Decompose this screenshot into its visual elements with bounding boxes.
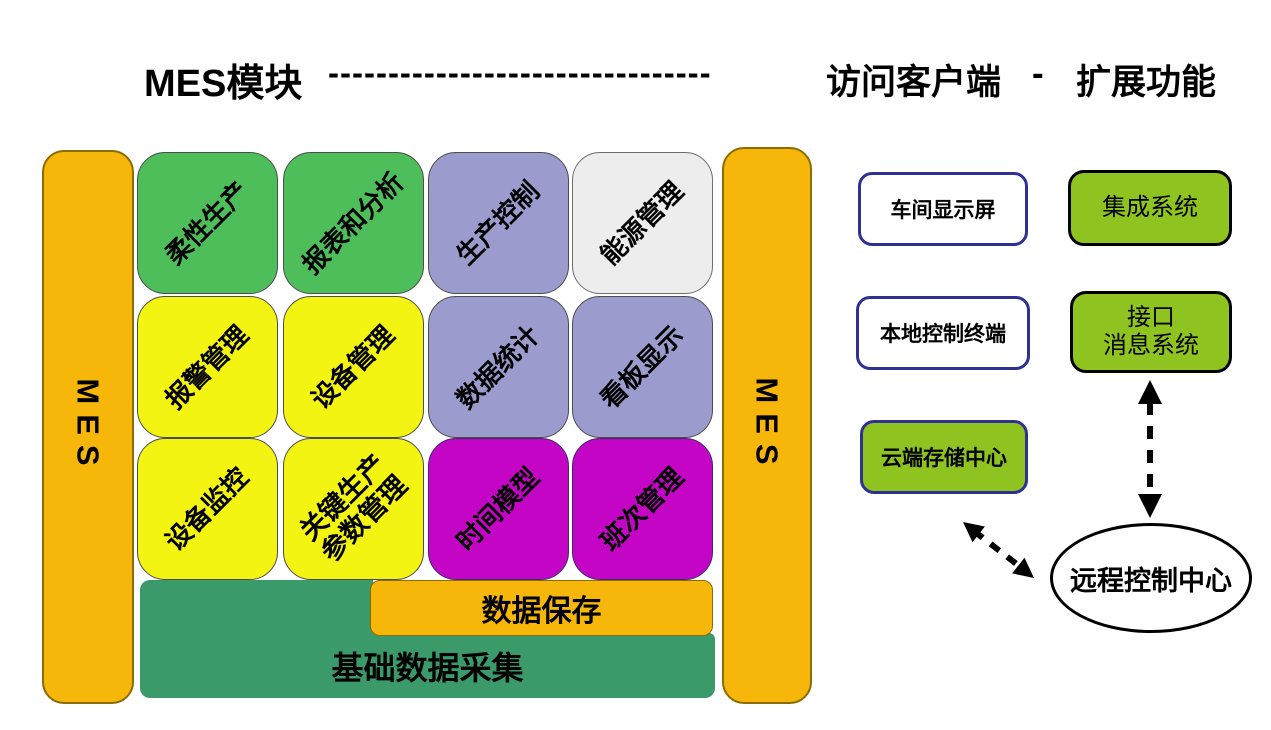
mes-left-label: MES bbox=[70, 378, 106, 475]
mes-right-label: MES bbox=[749, 377, 785, 474]
tile-equipment-management: 设备管理 bbox=[283, 296, 424, 438]
title-access-client: 访问客户端 bbox=[826, 54, 1001, 105]
mes-left-bar: MES bbox=[42, 150, 134, 704]
tile-reports-analysis-label: 报表和分析 bbox=[297, 167, 409, 279]
tile-alarm-management: 报警管理 bbox=[137, 296, 278, 438]
title-separator-dash: - bbox=[1032, 54, 1044, 94]
tile-data-statistics-label: 数据统计 bbox=[452, 320, 546, 414]
box-cloud-storage-center-label: 云端存储中心 bbox=[881, 442, 1007, 472]
tile-shift-management: 班次管理 bbox=[572, 438, 713, 580]
box-interface-message-system: 接口 消息系统 bbox=[1070, 291, 1232, 373]
tile-reports-analysis: 报表和分析 bbox=[283, 152, 424, 294]
bar-base-data-collection: 基础数据采集 bbox=[140, 633, 715, 698]
bar-data-save-label: 数据保存 bbox=[482, 586, 602, 630]
title-dashed-line: -------------------------------- bbox=[328, 54, 820, 92]
title-mes-module: MES模块 bbox=[144, 52, 302, 107]
tile-equipment-management-label: 设备管理 bbox=[307, 320, 401, 414]
box-workshop-display-screen-label: 车间显示屏 bbox=[891, 194, 996, 224]
tile-alarm-management-label: 报警管理 bbox=[161, 320, 255, 414]
box-integrated-system: 集成系统 bbox=[1068, 170, 1232, 246]
tile-equipment-monitoring: 设备监控 bbox=[137, 438, 278, 580]
arrow-vertical-dashed bbox=[1138, 380, 1162, 518]
bar-data-save: 数据保存 bbox=[370, 580, 713, 636]
tile-time-model: 时间模型 bbox=[428, 438, 569, 580]
title-extensions: 扩展功能 bbox=[1076, 54, 1216, 105]
box-integrated-system-label: 集成系统 bbox=[1102, 194, 1198, 222]
tile-energy-management: 能源管理 bbox=[572, 152, 713, 294]
base-data-collection-upper-block bbox=[140, 580, 373, 637]
tile-flexible-production-label: 柔性生产 bbox=[161, 176, 255, 270]
arrow-diagonal-dashed bbox=[963, 522, 1034, 578]
ellipse-remote-control-center: 远程控制中心 bbox=[1050, 523, 1252, 633]
tile-equipment-monitoring-label: 设备监控 bbox=[161, 462, 255, 556]
tile-key-production-params-label: 关键生产 参数管理 bbox=[294, 450, 412, 568]
tile-time-model-label: 时间模型 bbox=[452, 462, 546, 556]
tile-production-control-label: 生产控制 bbox=[452, 176, 546, 270]
tile-energy-management-label: 能源管理 bbox=[596, 176, 690, 270]
tile-shift-management-label: 班次管理 bbox=[596, 462, 690, 556]
box-cloud-storage-center: 云端存储中心 bbox=[860, 420, 1028, 494]
tile-flexible-production: 柔性生产 bbox=[137, 152, 278, 294]
tile-kanban-display: 看板显示 bbox=[572, 296, 713, 438]
tile-production-control: 生产控制 bbox=[428, 152, 569, 294]
bar-base-data-collection-label: 基础数据采集 bbox=[331, 643, 523, 689]
box-local-control-terminal: 本地控制终端 bbox=[856, 296, 1030, 370]
box-local-control-terminal-label: 本地控制终端 bbox=[880, 318, 1006, 348]
tile-key-production-params: 关键生产 参数管理 bbox=[283, 438, 424, 580]
mes-right-bar: MES bbox=[722, 147, 812, 704]
box-workshop-display-screen: 车间显示屏 bbox=[858, 172, 1028, 246]
ellipse-remote-control-center-label: 远程控制中心 bbox=[1070, 559, 1232, 598]
box-interface-message-system-label: 接口 消息系统 bbox=[1103, 304, 1199, 359]
tile-data-statistics: 数据统计 bbox=[428, 296, 569, 438]
tile-kanban-display-label: 看板显示 bbox=[596, 320, 690, 414]
